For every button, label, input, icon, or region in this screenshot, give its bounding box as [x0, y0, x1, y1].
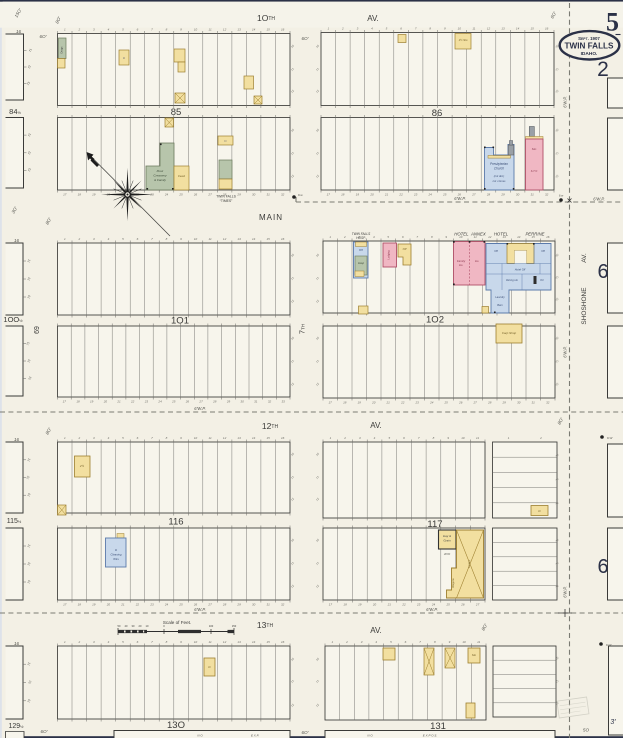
svg-text:6′W.P.: 6′W.P.	[563, 96, 568, 108]
svg-text:32: 32	[281, 193, 285, 197]
svg-text:Wagons: Wagons	[451, 578, 455, 588]
svg-text:13: 13	[237, 436, 241, 440]
svg-text:6: 6	[597, 556, 608, 578]
svg-text:2: 2	[343, 436, 346, 440]
svg-text:“TIMES”: “TIMES”	[220, 199, 233, 203]
svg-text:21: 21	[387, 603, 392, 607]
svg-text:21: 21	[386, 401, 391, 405]
svg-text:29: 29	[236, 193, 241, 197]
svg-text:25: 25	[444, 401, 449, 405]
svg-text:11: 11	[209, 27, 212, 31]
svg-text:69: 69	[34, 326, 41, 334]
svg-text:N O: N O	[367, 734, 373, 738]
svg-text:18: 18	[78, 603, 82, 607]
svg-text:10: 10	[194, 436, 198, 440]
svg-text:29: 29	[502, 401, 507, 405]
svg-text:12: 12	[223, 640, 227, 644]
svg-text:11: 11	[209, 237, 212, 241]
svg-text:24: 24	[429, 401, 434, 405]
svg-text:19: 19	[358, 401, 362, 405]
svg-text:32: 32	[268, 400, 272, 404]
svg-text:22: 22	[400, 401, 405, 405]
svg-text:16: 16	[14, 238, 20, 243]
svg-text:10: 10	[461, 436, 465, 440]
svg-text:31: 31	[254, 400, 258, 404]
svg-text:28: 28	[212, 400, 217, 404]
svg-text:32: 32	[546, 401, 550, 405]
svg-text:30: 30	[517, 401, 521, 405]
svg-text:Sto: Sto	[532, 147, 537, 151]
svg-text:30: 30	[252, 193, 256, 197]
svg-text:6′W.P.: 6′W.P.	[593, 197, 605, 202]
svg-text:HOTEL: HOTEL	[494, 232, 509, 237]
svg-text:Hay &: Hay &	[443, 534, 451, 538]
svg-text:Livery: Livery	[467, 560, 471, 569]
svg-text:29: 29	[226, 400, 231, 404]
svg-text:16: 16	[281, 237, 285, 241]
svg-text:17: 17	[329, 603, 333, 607]
svg-text:13: 13	[237, 237, 241, 241]
svg-text:30: 30	[240, 400, 244, 404]
svg-text:N O: N O	[197, 734, 203, 738]
svg-text:33: 33	[282, 400, 286, 404]
svg-text:6O′: 6O′	[41, 729, 48, 734]
svg-text:Church: Church	[494, 167, 505, 171]
svg-text:Dining Ho: Dining Ho	[506, 278, 518, 282]
svg-text:13O: 13O	[167, 720, 185, 731]
svg-text:SHOSHONE: SHOSHONE	[581, 287, 588, 325]
svg-text:10: 10	[194, 640, 198, 644]
svg-text:6′W.P.: 6′W.P.	[194, 406, 206, 411]
svg-text:14: 14	[252, 27, 256, 31]
svg-text:20: 20	[103, 400, 108, 404]
svg-text:24: 24	[428, 193, 433, 197]
svg-text:25: 25	[178, 193, 183, 197]
svg-text:PERRINE: PERRINE	[525, 232, 544, 237]
svg-text:18: 18	[341, 193, 345, 197]
svg-text:4OO: 4OO	[444, 552, 451, 556]
svg-text:26: 26	[193, 603, 198, 607]
svg-text:14: 14	[252, 436, 256, 440]
svg-text:23: 23	[416, 603, 421, 607]
svg-text:Grain: Grain	[443, 539, 451, 543]
svg-text:E X P O S.: E X P O S.	[423, 734, 438, 738]
svg-text:31: 31	[532, 401, 536, 405]
svg-text:Drugs: Drugs	[59, 46, 63, 54]
svg-text:12: 12	[223, 237, 227, 241]
svg-text:HOSP.: HOSP.	[356, 236, 366, 240]
svg-text:Lodging: Lodging	[387, 250, 391, 260]
svg-text:19: 19	[356, 193, 360, 197]
svg-text:16: 16	[281, 436, 285, 440]
svg-text:5: 5	[606, 8, 619, 37]
svg-text:15: 15	[267, 27, 271, 31]
svg-text:22: 22	[135, 603, 140, 607]
svg-text:31: 31	[267, 193, 271, 197]
svg-text:Barn: Barn	[497, 303, 503, 307]
svg-text:12: 12	[223, 436, 227, 440]
svg-text:17: 17	[63, 603, 67, 607]
svg-text:16: 16	[546, 235, 550, 239]
svg-text:& Family: & Family	[154, 178, 166, 182]
svg-text:2: 2	[343, 235, 346, 239]
svg-text:14: 14	[252, 640, 256, 644]
svg-text:Sto: Sto	[472, 653, 477, 657]
svg-text:Scale of Feet.: Scale of Feet.	[163, 620, 191, 625]
svg-text:6′W.P.: 6′W.P.	[194, 607, 206, 612]
svg-text:25: 25	[171, 400, 176, 404]
svg-text:(not det.): (not det.)	[494, 174, 505, 178]
svg-text:2: 2	[77, 237, 80, 241]
svg-text:24: 24	[164, 193, 169, 197]
svg-text:14: 14	[517, 235, 521, 239]
svg-text:6′W.P.: 6′W.P.	[426, 607, 438, 612]
svg-text:27: 27	[198, 400, 203, 404]
svg-text:15: 15	[267, 436, 271, 440]
svg-text:12: 12	[488, 235, 492, 239]
svg-text:Hotel Off: Hotel Off	[515, 268, 526, 272]
svg-text:18: 18	[76, 400, 80, 404]
svg-text:Hosp: Hosp	[358, 261, 365, 265]
svg-text:27: 27	[207, 603, 212, 607]
svg-text:15: 15	[267, 237, 271, 241]
svg-text:26: 26	[458, 401, 463, 405]
svg-text:16: 16	[281, 27, 285, 31]
svg-text:27: 27	[471, 193, 476, 197]
svg-text:18: 18	[343, 401, 347, 405]
svg-text:TWIN FALLS: TWIN FALLS	[216, 195, 237, 199]
svg-text:30: 30	[516, 193, 520, 197]
svg-text:10: 10	[194, 237, 198, 241]
svg-text:17: 17	[63, 400, 67, 404]
svg-text:5O: 5O	[583, 728, 590, 733]
svg-text:16: 16	[14, 437, 20, 442]
svg-text:30: 30	[252, 603, 256, 607]
svg-text:32: 32	[281, 603, 285, 607]
svg-text:2: 2	[77, 640, 80, 644]
svg-text:SEPT. 1907: SEPT. 1907	[578, 36, 600, 41]
svg-text:1O2: 1O2	[426, 315, 444, 326]
svg-text:28: 28	[486, 193, 491, 197]
svg-text:18: 18	[78, 193, 82, 197]
svg-text:AV.: AV.	[367, 14, 379, 23]
svg-text:Ho.: Ho.	[475, 259, 480, 263]
svg-text:2: 2	[341, 26, 344, 30]
svg-text:Flour: Flour	[157, 169, 165, 173]
svg-text:19: 19	[92, 193, 96, 197]
svg-text:Laundry: Laundry	[495, 295, 505, 299]
svg-text:Ho.: Ho.	[459, 263, 464, 267]
svg-text:6′W.P.: 6′W.P.	[563, 586, 568, 598]
svg-text:20: 20	[371, 401, 376, 405]
svg-text:AV.: AV.	[370, 626, 382, 635]
svg-text:11: 11	[209, 640, 212, 644]
svg-text:28: 28	[222, 603, 227, 607]
svg-text:AV.: AV.	[581, 253, 588, 263]
svg-text:Cleaning: Cleaning	[110, 553, 121, 557]
svg-text:32: 32	[545, 193, 549, 197]
svg-text:1½ Sto: 1½ Sto	[459, 38, 468, 42]
svg-text:2: 2	[539, 436, 542, 440]
svg-text:6: 6	[597, 261, 608, 283]
svg-text:11: 11	[472, 26, 475, 30]
svg-text:17: 17	[329, 401, 333, 405]
svg-text:6O′: 6O′	[40, 34, 47, 39]
svg-text:2½: 2½	[79, 464, 85, 468]
svg-text:29: 29	[500, 193, 505, 197]
svg-text:15: 15	[267, 640, 271, 644]
svg-text:Creamery: Creamery	[153, 174, 167, 178]
svg-text:129½: 129½	[8, 723, 24, 730]
svg-text:27: 27	[475, 603, 480, 607]
svg-text:85: 85	[171, 107, 182, 118]
svg-text:23: 23	[413, 193, 418, 197]
svg-text:2: 2	[77, 436, 80, 440]
svg-text:26: 26	[193, 193, 198, 197]
svg-text:22: 22	[398, 193, 403, 197]
svg-text:6O′: 6O′	[302, 730, 309, 735]
svg-text:6′W.P.: 6′W.P.	[563, 346, 568, 358]
svg-text:Off: Off	[541, 249, 545, 253]
svg-text:11: 11	[209, 436, 212, 440]
svg-text:23: 23	[415, 401, 420, 405]
svg-text:24: 24	[157, 400, 162, 404]
svg-text:19: 19	[92, 603, 96, 607]
svg-text:HOTEL ANNEX: HOTEL ANNEX	[454, 232, 486, 237]
svg-text:23: 23	[144, 400, 149, 404]
svg-text:1O1: 1O1	[171, 316, 189, 327]
svg-text:16: 16	[545, 26, 549, 30]
svg-text:Off: Off	[494, 249, 498, 253]
svg-text:14: 14	[516, 26, 520, 30]
svg-text:MAIN: MAIN	[259, 213, 283, 222]
svg-text:25: 25	[446, 603, 451, 607]
svg-text:27: 27	[207, 193, 212, 197]
svg-text:31: 31	[267, 603, 271, 607]
svg-text:26: 26	[185, 400, 190, 404]
svg-text:13: 13	[501, 26, 505, 30]
svg-text:31: 31	[531, 193, 535, 197]
svg-text:6O′: 6O′	[302, 36, 309, 41]
svg-text:not • Gross: not • Gross	[493, 179, 507, 183]
svg-text:22: 22	[130, 400, 135, 404]
svg-text:Kit: Kit	[540, 278, 543, 282]
svg-text:2: 2	[77, 27, 80, 31]
svg-text:19: 19	[90, 400, 94, 404]
svg-text:Wks: Wks	[113, 557, 119, 561]
svg-text:25: 25	[178, 603, 183, 607]
svg-text:2: 2	[597, 58, 609, 81]
svg-text:D: D	[115, 548, 117, 552]
svg-text:14: 14	[252, 237, 256, 241]
svg-text:AV.: AV.	[370, 421, 382, 430]
svg-text:16: 16	[281, 640, 285, 644]
svg-text:11: 11	[476, 436, 479, 440]
svg-text:150: 150	[232, 624, 237, 628]
svg-text:17: 17	[327, 193, 331, 197]
svg-text:10: 10	[462, 640, 466, 644]
svg-text:12: 12	[487, 26, 491, 30]
svg-text:115½: 115½	[7, 518, 22, 525]
svg-text:21: 21	[384, 193, 389, 197]
svg-text:116: 116	[168, 517, 183, 528]
svg-text:10: 10	[458, 26, 462, 30]
svg-text:Feed: Feed	[178, 174, 185, 178]
svg-text:17: 17	[63, 193, 67, 197]
svg-text:24: 24	[164, 603, 169, 607]
svg-text:26: 26	[457, 193, 462, 197]
svg-text:28: 28	[487, 401, 492, 405]
svg-text:3′: 3′	[610, 719, 616, 726]
svg-text:25: 25	[442, 193, 447, 197]
svg-text:16: 16	[14, 641, 20, 646]
svg-text:18: 18	[343, 603, 347, 607]
svg-text:100: 100	[209, 624, 214, 628]
svg-text:29: 29	[236, 603, 241, 607]
svg-text:21: 21	[120, 603, 125, 607]
svg-text:13: 13	[237, 640, 241, 644]
svg-text:10: 10	[194, 27, 198, 31]
svg-text:20: 20	[369, 193, 374, 197]
svg-text:26: 26	[460, 603, 465, 607]
svg-text:15: 15	[531, 26, 535, 30]
svg-text:16: 16	[16, 29, 22, 34]
svg-text:IDAHO.: IDAHO.	[581, 51, 598, 57]
svg-text:21: 21	[116, 400, 121, 404]
svg-text:27: 27	[473, 401, 478, 405]
svg-text:S.T.O: S.T.O	[531, 169, 538, 173]
svg-text:19: 19	[358, 603, 362, 607]
svg-text:2: 2	[345, 640, 348, 644]
svg-text:6′W.P.: 6′W.P.	[454, 196, 466, 201]
svg-text:12: 12	[223, 27, 227, 31]
svg-text:11: 11	[477, 640, 480, 644]
svg-text:20: 20	[106, 603, 111, 607]
svg-text:20: 20	[372, 603, 377, 607]
svg-text:E X P.: E X P.	[251, 734, 259, 738]
svg-text:Presbyterian: Presbyterian	[490, 162, 508, 166]
svg-text:Carp Shop: Carp Shop	[502, 331, 517, 335]
svg-text:22: 22	[401, 603, 406, 607]
svg-text:TWIN FALLS: TWIN FALLS	[565, 42, 615, 51]
svg-text:24: 24	[431, 603, 436, 607]
svg-text:23: 23	[149, 603, 154, 607]
svg-text:13: 13	[237, 27, 241, 31]
